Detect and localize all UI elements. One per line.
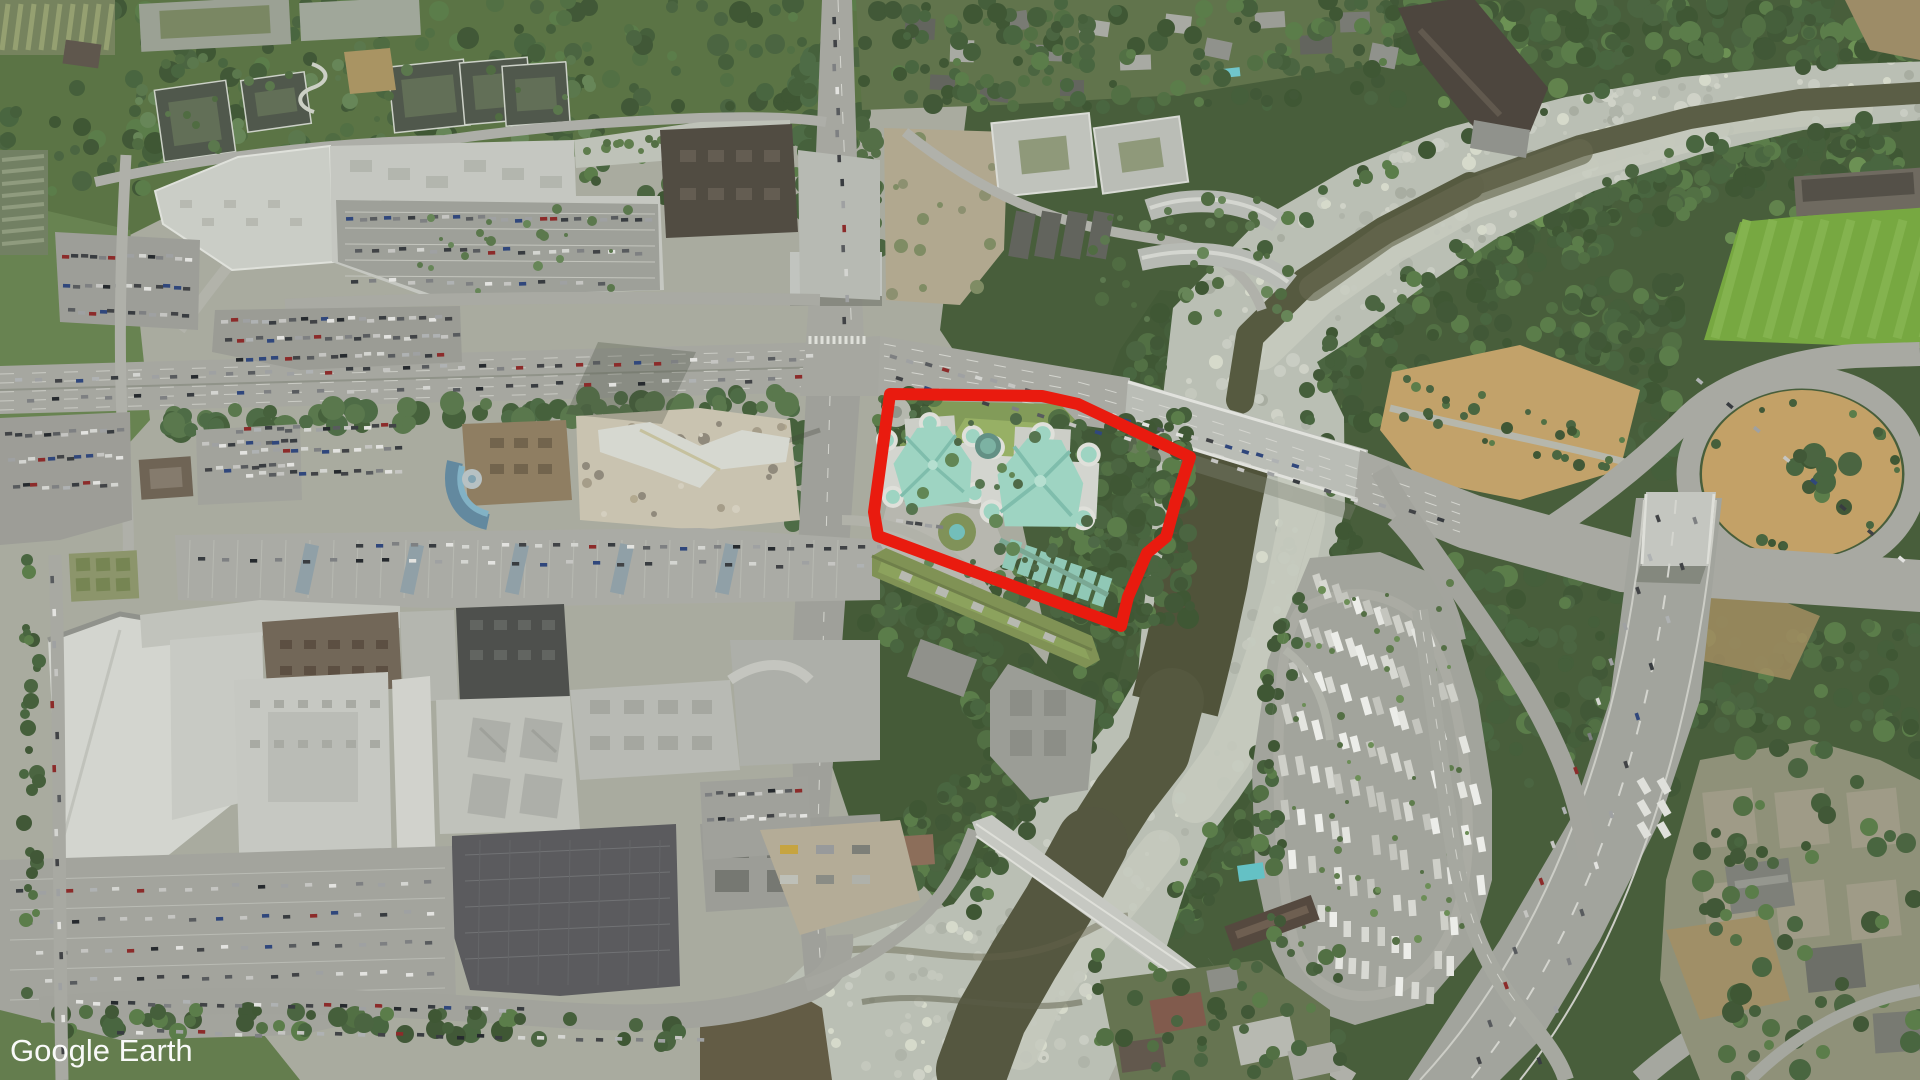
- svg-text:Google Earth: Google Earth: [10, 1033, 193, 1068]
